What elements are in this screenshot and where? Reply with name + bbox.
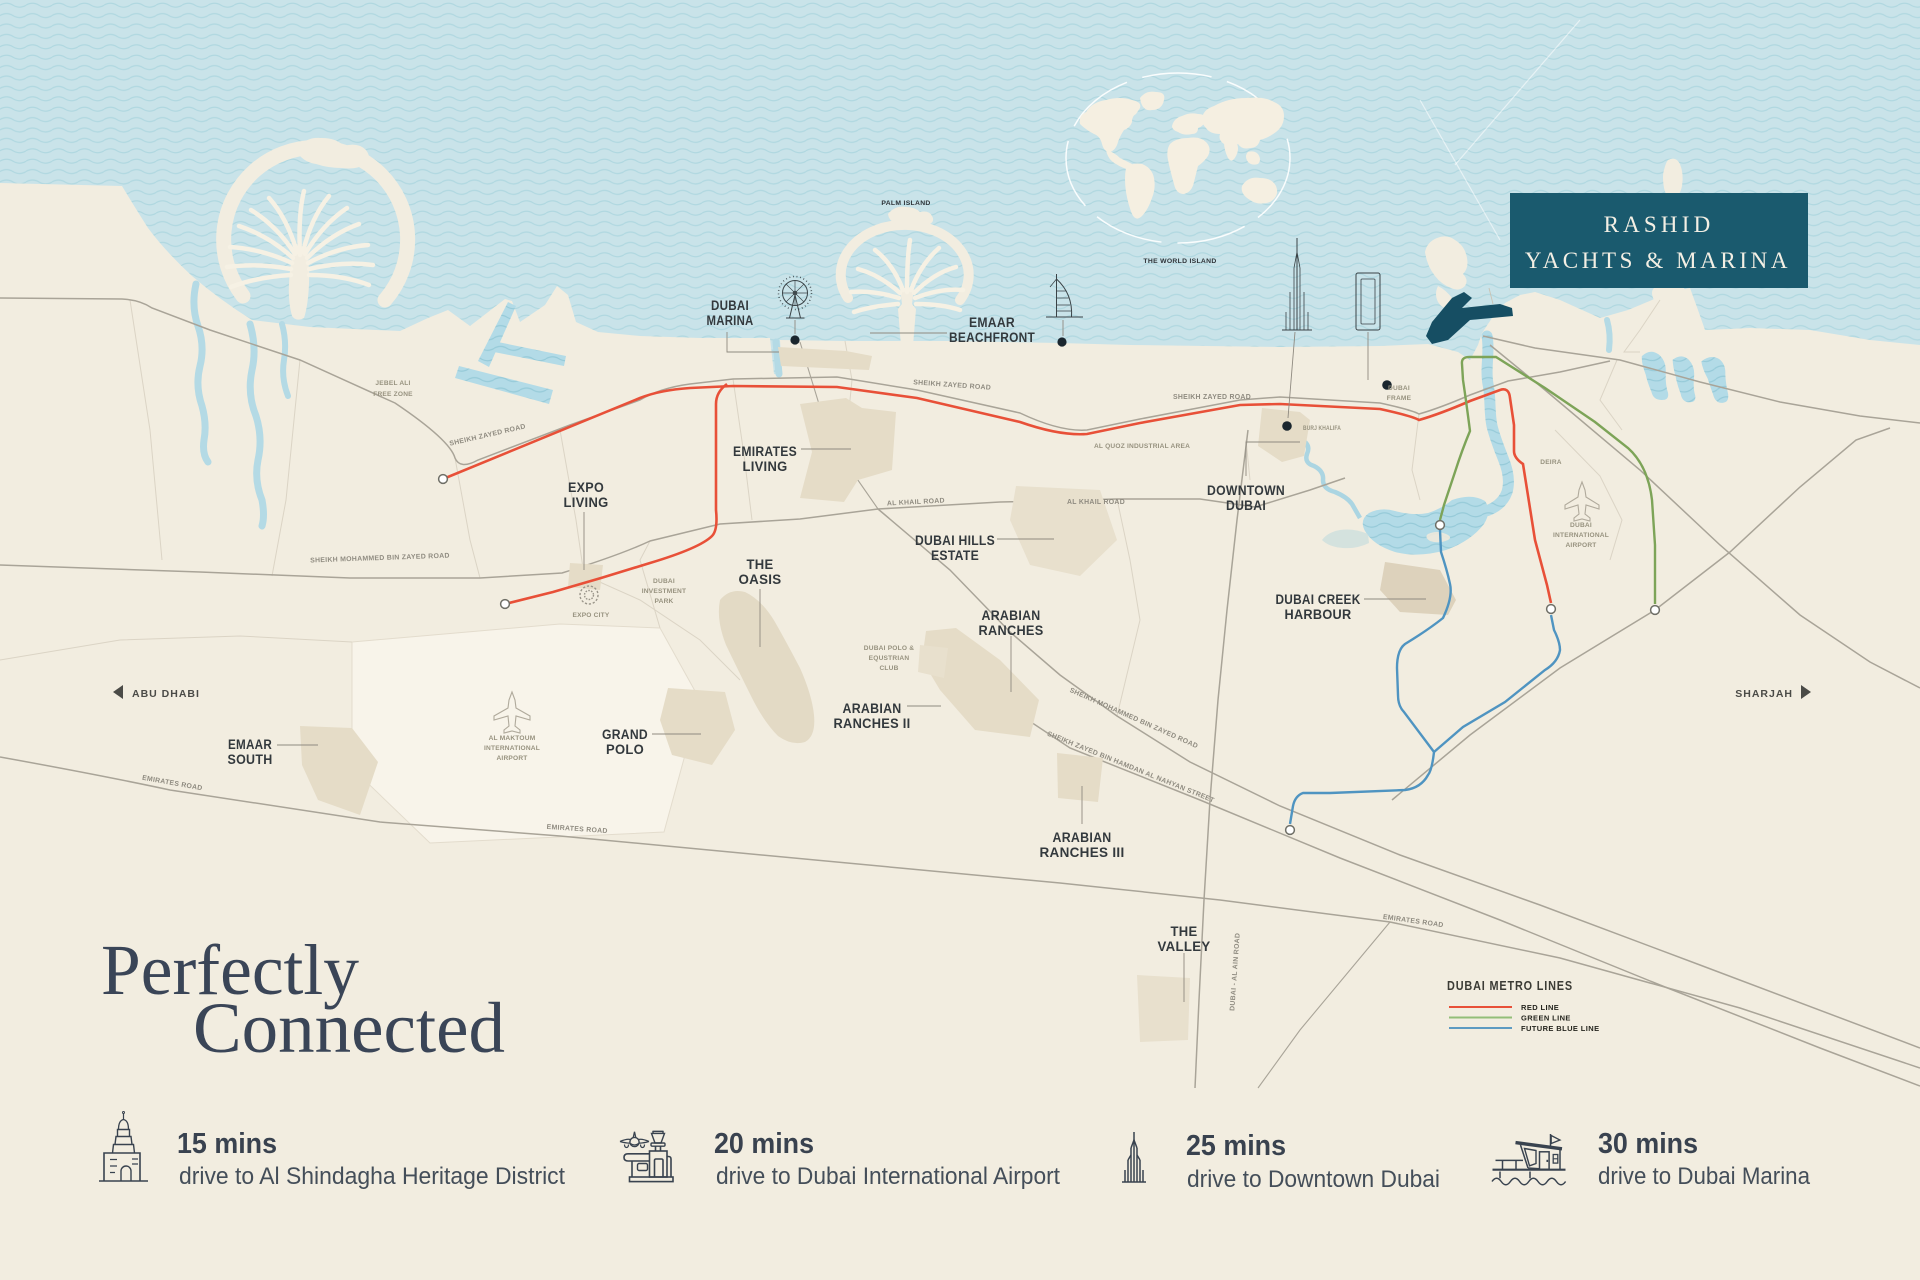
svg-text:RANCHES II: RANCHES II xyxy=(834,716,911,731)
svg-text:VALLEY: VALLEY xyxy=(1158,939,1211,954)
svg-text:drive to Al Shindagha Heritage: drive to Al Shindagha Heritage District xyxy=(179,1163,565,1190)
svg-text:EXPO: EXPO xyxy=(568,480,604,495)
svg-text:FUTURE BLUE LINE: FUTURE BLUE LINE xyxy=(1521,1024,1599,1033)
svg-text:POLO: POLO xyxy=(606,742,644,757)
svg-text:15 mins: 15 mins xyxy=(177,1128,277,1160)
svg-text:LIVING: LIVING xyxy=(564,495,609,510)
svg-text:RANCHES: RANCHES xyxy=(979,623,1044,638)
svg-text:DUBAI: DUBAI xyxy=(653,578,675,585)
svg-text:drive to Dubai International A: drive to Dubai International Airport xyxy=(716,1163,1060,1190)
svg-text:RED LINE: RED LINE xyxy=(1521,1003,1559,1012)
svg-text:drive to Downtown Dubai: drive to Downtown Dubai xyxy=(1187,1166,1440,1193)
svg-text:EQUSTRIAN: EQUSTRIAN xyxy=(869,655,910,662)
svg-text:DUBAI: DUBAI xyxy=(1388,385,1410,392)
svg-text:EMAAR: EMAAR xyxy=(228,737,272,752)
svg-text:DUBAI: DUBAI xyxy=(1226,498,1266,513)
svg-text:LIVING: LIVING xyxy=(743,459,788,474)
svg-text:Connected: Connected xyxy=(193,988,505,1068)
svg-text:INVESTMENT: INVESTMENT xyxy=(642,588,687,595)
svg-text:DOWNTOWN: DOWNTOWN xyxy=(1207,483,1285,498)
svg-text:RANCHES III: RANCHES III xyxy=(1040,845,1125,860)
svg-text:DUBAI HILLS: DUBAI HILLS xyxy=(915,533,995,548)
svg-text:INTERNATIONAL: INTERNATIONAL xyxy=(484,745,540,752)
svg-text:AIRPORT: AIRPORT xyxy=(1565,542,1596,549)
svg-text:THE: THE xyxy=(747,557,774,572)
svg-text:THE WORLD ISLAND: THE WORLD ISLAND xyxy=(1143,258,1216,265)
svg-text:DUBAI: DUBAI xyxy=(711,298,749,313)
svg-text:PARK: PARK xyxy=(655,598,674,605)
svg-text:20 mins: 20 mins xyxy=(714,1128,814,1160)
svg-text:GRAND: GRAND xyxy=(602,727,648,742)
svg-text:ESTATE: ESTATE xyxy=(931,548,979,563)
svg-text:DUBAI METRO LINES: DUBAI METRO LINES xyxy=(1447,978,1573,993)
svg-text:ABU DHABI: ABU DHABI xyxy=(132,688,200,700)
svg-text:AIRPORT: AIRPORT xyxy=(496,755,527,762)
svg-text:30 mins: 30 mins xyxy=(1598,1128,1698,1160)
svg-text:25 mins: 25 mins xyxy=(1186,1130,1286,1162)
svg-text:EMIRATES: EMIRATES xyxy=(733,444,797,459)
svg-text:SOUTH: SOUTH xyxy=(228,752,273,767)
svg-text:OASIS: OASIS xyxy=(739,572,782,587)
svg-text:ARABIAN: ARABIAN xyxy=(843,701,902,716)
svg-text:PALM ISLAND: PALM ISLAND xyxy=(881,200,930,207)
svg-text:HARBOUR: HARBOUR xyxy=(1285,607,1352,622)
svg-text:DEIRA: DEIRA xyxy=(1540,459,1562,466)
svg-text:BEACHFRONT: BEACHFRONT xyxy=(949,330,1035,345)
svg-text:DUBAI: DUBAI xyxy=(1570,522,1592,529)
svg-text:MARINA: MARINA xyxy=(707,313,754,328)
svg-text:DUBAI CREEK: DUBAI CREEK xyxy=(1276,592,1361,607)
svg-text:SHEIKH ZAYED ROAD: SHEIKH ZAYED ROAD xyxy=(1173,394,1251,401)
svg-text:SHARJAH: SHARJAH xyxy=(1735,688,1793,700)
svg-text:INTERNATIONAL: INTERNATIONAL xyxy=(1553,532,1609,539)
svg-text:AL QUOZ INDUSTRIAL AREA: AL QUOZ INDUSTRIAL AREA xyxy=(1094,443,1190,450)
svg-text:RASHID: RASHID xyxy=(1604,212,1715,237)
svg-text:drive to Dubai Marina: drive to Dubai Marina xyxy=(1598,1163,1811,1190)
svg-text:AL KHAIL ROAD: AL KHAIL ROAD xyxy=(1067,499,1125,506)
svg-text:DUBAI POLO &: DUBAI POLO & xyxy=(864,645,914,652)
svg-text:AL MAKTOUM: AL MAKTOUM xyxy=(489,735,536,742)
svg-text:THE: THE xyxy=(1171,924,1198,939)
svg-text:CLUB: CLUB xyxy=(879,665,898,672)
svg-text:EXPO CITY: EXPO CITY xyxy=(573,612,610,619)
svg-text:EMAAR: EMAAR xyxy=(969,315,1015,330)
svg-text:GREEN LINE: GREEN LINE xyxy=(1521,1014,1571,1023)
svg-text:FRAME: FRAME xyxy=(1387,395,1412,402)
svg-text:ARABIAN: ARABIAN xyxy=(1053,830,1112,845)
svg-text:JEBEL ALI: JEBEL ALI xyxy=(375,380,410,387)
svg-text:YACHTS & MARINA: YACHTS & MARINA xyxy=(1525,248,1791,273)
svg-text:ARABIAN: ARABIAN xyxy=(982,608,1041,623)
svg-text:BURJ KHALIFA: BURJ KHALIFA xyxy=(1303,425,1341,432)
svg-text:FREE ZONE: FREE ZONE xyxy=(373,391,413,398)
